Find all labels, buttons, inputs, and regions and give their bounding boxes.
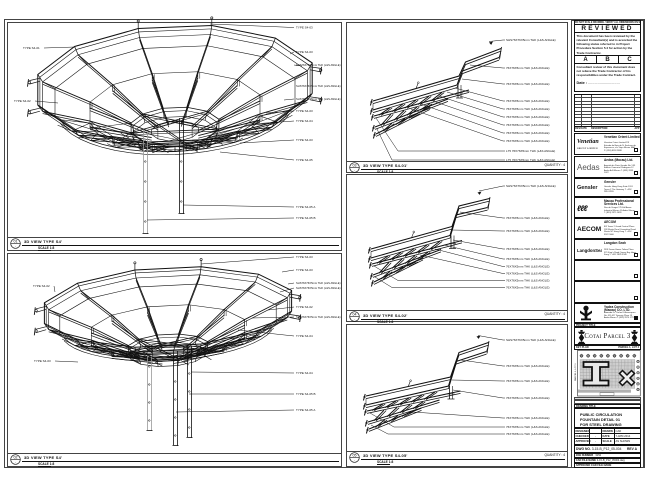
svg-text:SHS76X76X5mm THK (L&S ANGLE): SHS76X76X5mm THK (L&S ANGLE) (506, 38, 556, 42)
svg-text:76X76X5mm THK (L&S ANGLE): 76X76X5mm THK (L&S ANGLE) (506, 425, 549, 429)
svg-text:SHS76X76X5mm THK (L&S ANGLE): SHS76X76X5mm THK (L&S ANGLE) (296, 286, 341, 290)
svg-text:L75 76X76X5mm THK (L&S ANGLE): L75 76X76X5mm THK (L&S ANGLE) (506, 149, 555, 153)
svg-text:TYPE S4-03: TYPE S4-03 (296, 109, 313, 113)
svg-text:76X76X5mm THK (L&S ANGLE): 76X76X5mm THK (L&S ANGLE) (506, 364, 549, 368)
svg-text:TYPE S4-05 B: TYPE S4-05 B (296, 392, 316, 396)
svg-text:TYPE S4-05 A: TYPE S4-05 A (296, 205, 315, 209)
svg-text:76X76X5mm THK (L&S ANGLE): 76X76X5mm THK (L&S ANGLE) (506, 107, 549, 111)
svg-text:76X76X5mm THK (L&S ANGLE): 76X76X5mm THK (L&S ANGLE) (506, 247, 549, 251)
svg-text:TYPE S4-03: TYPE S4-03 (296, 26, 313, 30)
svg-text:76X76X5mm THK (L&S ANGLE): 76X76X5mm THK (L&S ANGLE) (506, 286, 549, 290)
svg-text:TYPE S4-04: TYPE S4-04 (296, 371, 313, 375)
svg-text:TYPE S4-04: TYPE S4-04 (296, 334, 313, 338)
svg-text:SHS76X76X5mm THK (L&S ANGLE): SHS76X76X5mm THK (L&S ANGLE) (296, 97, 341, 101)
svg-text:TYPE S4-03: TYPE S4-03 (296, 50, 313, 54)
svg-text:TYPE S4-01: TYPE S4-01 (23, 46, 40, 50)
svg-text:76X76X5mm THK (L&S ANGLE): 76X76X5mm THK (L&S ANGLE) (506, 123, 549, 127)
svg-text:76X76X5mm THK (L&S ANGLE): 76X76X5mm THK (L&S ANGLE) (506, 229, 549, 233)
svg-text:76X76X5mm THK (L&S ANGLE): 76X76X5mm THK (L&S ANGLE) (506, 66, 549, 70)
svg-text:76X76X5mm THK (L&S ANGLE): 76X76X5mm THK (L&S ANGLE) (506, 396, 549, 400)
svg-text:76X76X5mm THK (L&S ANGLE): 76X76X5mm THK (L&S ANGLE) (506, 99, 549, 103)
svg-text:TYPE S4-03: TYPE S4-03 (34, 359, 51, 363)
svg-text:76X76X5mm THK (L&S ANGLE): 76X76X5mm THK (L&S ANGLE) (506, 216, 549, 220)
svg-text:TYPE S4-04: TYPE S4-04 (296, 119, 313, 123)
svg-text:76X76X5mm THK (L&S ANGLE): 76X76X5mm THK (L&S ANGLE) (506, 279, 549, 283)
svg-text:SHS76X76X5mm THK (L&S ANGLE): SHS76X76X5mm THK (L&S ANGLE) (296, 63, 341, 67)
svg-text:76X76X5mm THK (L&S ANGLE): 76X76X5mm THK (L&S ANGLE) (506, 82, 549, 86)
svg-text:SHS76X76X5mm THK (L&S ANGLE): SHS76X76X5mm THK (L&S ANGLE) (296, 281, 341, 285)
svg-text:76X76X5mm THK (L&S ANGLE): 76X76X5mm THK (L&S ANGLE) (506, 265, 549, 269)
svg-text:76X76X5mm THK (L&S ANGLE): 76X76X5mm THK (L&S ANGLE) (506, 416, 549, 420)
svg-text:SHS76X76X5mm THK (L&S ANGLE): SHS76X76X5mm THK (L&S ANGLE) (506, 184, 556, 188)
svg-text:TYPE S4-02: TYPE S4-02 (14, 99, 31, 103)
svg-text:76X76X5mm THK (L&S ANGLE): 76X76X5mm THK (L&S ANGLE) (506, 272, 549, 276)
svg-text:L75 76X76X5mm THK (L&S ANGLE): L75 76X76X5mm THK (L&S ANGLE) (506, 158, 555, 162)
svg-text:TYPE S4-05 B: TYPE S4-05 B (296, 216, 316, 220)
svg-text:SHS76X76X5mm THK (L&S ANGLE): SHS76X76X5mm THK (L&S ANGLE) (296, 84, 341, 88)
svg-text:TYPE S4-03: TYPE S4-03 (296, 268, 313, 272)
svg-text:76X76X5mm THK (L&S ANGLE): 76X76X5mm THK (L&S ANGLE) (506, 379, 549, 383)
svg-text:TYPE S4-05: TYPE S4-05 (296, 158, 313, 162)
svg-text:TYPE S4-02: TYPE S4-02 (296, 305, 313, 309)
svg-text:TYPE S4-02: TYPE S4-02 (33, 284, 50, 288)
svg-text:76X76X5mm THK (L&S ANGLE): 76X76X5mm THK (L&S ANGLE) (506, 257, 549, 261)
svg-text:76X76X5mm THK (L&S ANGLE): 76X76X5mm THK (L&S ANGLE) (506, 115, 549, 119)
svg-text:TYPE S4-03: TYPE S4-03 (296, 255, 313, 259)
svg-text:TYPE S4-05 A: TYPE S4-05 A (296, 408, 315, 412)
svg-text:76X76X5mm THK (L&S ANGLE): 76X76X5mm THK (L&S ANGLE) (506, 432, 549, 436)
svg-text:76X76X5mm THK (L&S ANGLE): 76X76X5mm THK (L&S ANGLE) (506, 131, 549, 135)
svg-text:TYPE S4-03: TYPE S4-03 (296, 138, 313, 142)
svg-text:SHS76X76X5mm THK (L&S ANGLE): SHS76X76X5mm THK (L&S ANGLE) (296, 315, 341, 319)
svg-text:76X76X5mm THK (L&S ANGLE): 76X76X5mm THK (L&S ANGLE) (506, 139, 549, 143)
svg-text:SHS76X76X5mm THK (L&S ANGLE): SHS76X76X5mm THK (L&S ANGLE) (506, 338, 556, 342)
